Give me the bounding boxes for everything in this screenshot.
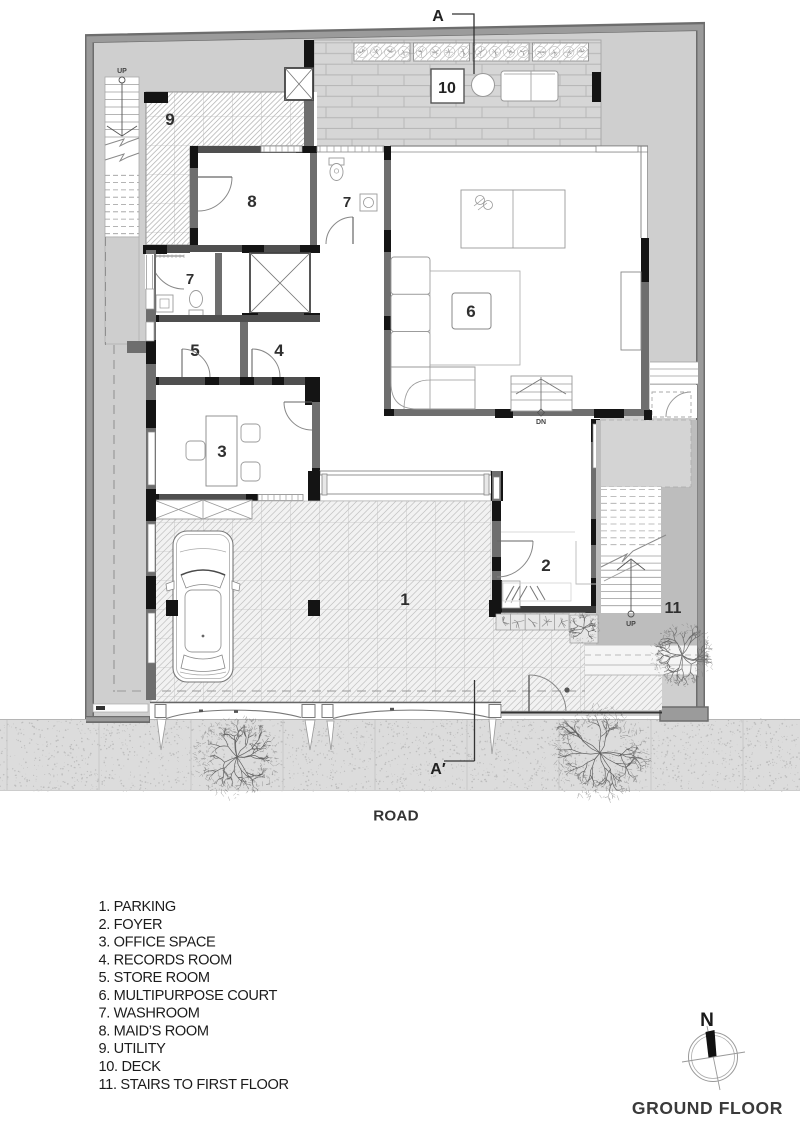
- svg-text:DN: DN: [536, 419, 546, 426]
- svg-text:9: 9: [165, 110, 174, 129]
- svg-text:10: 10: [438, 80, 456, 97]
- svg-text:11: 11: [665, 600, 682, 617]
- svg-text:5. STORE ROOM: 5. STORE ROOM: [99, 970, 210, 986]
- svg-text:11. STAIRS TO FIRST FLOOR: 11. STAIRS TO FIRST FLOOR: [99, 1077, 289, 1093]
- svg-text:ROAD: ROAD: [373, 808, 419, 825]
- svg-text:3: 3: [217, 442, 226, 461]
- svg-text:A: A: [432, 8, 444, 25]
- svg-text:8: 8: [247, 192, 256, 211]
- svg-text:N: N: [700, 1010, 714, 1031]
- svg-text:UP: UP: [117, 68, 127, 75]
- svg-text:7: 7: [186, 271, 194, 288]
- svg-text:2. FOYER: 2. FOYER: [99, 917, 163, 933]
- svg-text:3. OFFICE SPACE: 3. OFFICE SPACE: [99, 935, 217, 951]
- svg-text:A′: A′: [430, 761, 446, 778]
- svg-text:1. PARKING: 1. PARKING: [99, 899, 176, 915]
- svg-text:GROUND FLOOR: GROUND FLOOR: [632, 1098, 783, 1118]
- svg-text:7: 7: [343, 194, 351, 211]
- svg-text:1: 1: [400, 590, 409, 609]
- svg-text:10. DECK: 10. DECK: [99, 1059, 162, 1075]
- svg-text:8. MAID’S ROOM: 8. MAID’S ROOM: [99, 1023, 209, 1039]
- svg-text:UP: UP: [626, 621, 636, 628]
- svg-text:2: 2: [541, 556, 550, 575]
- svg-text:6: 6: [466, 302, 475, 321]
- svg-text:7. WASHROOM: 7. WASHROOM: [99, 1006, 200, 1022]
- svg-text:4: 4: [274, 341, 284, 360]
- svg-text:9. UTILITY: 9. UTILITY: [99, 1041, 167, 1057]
- svg-text:4. RECORDS ROOM: 4. RECORDS ROOM: [99, 952, 232, 968]
- svg-text:6. MULTIPURPOSE COURT: 6. MULTIPURPOSE COURT: [99, 988, 278, 1004]
